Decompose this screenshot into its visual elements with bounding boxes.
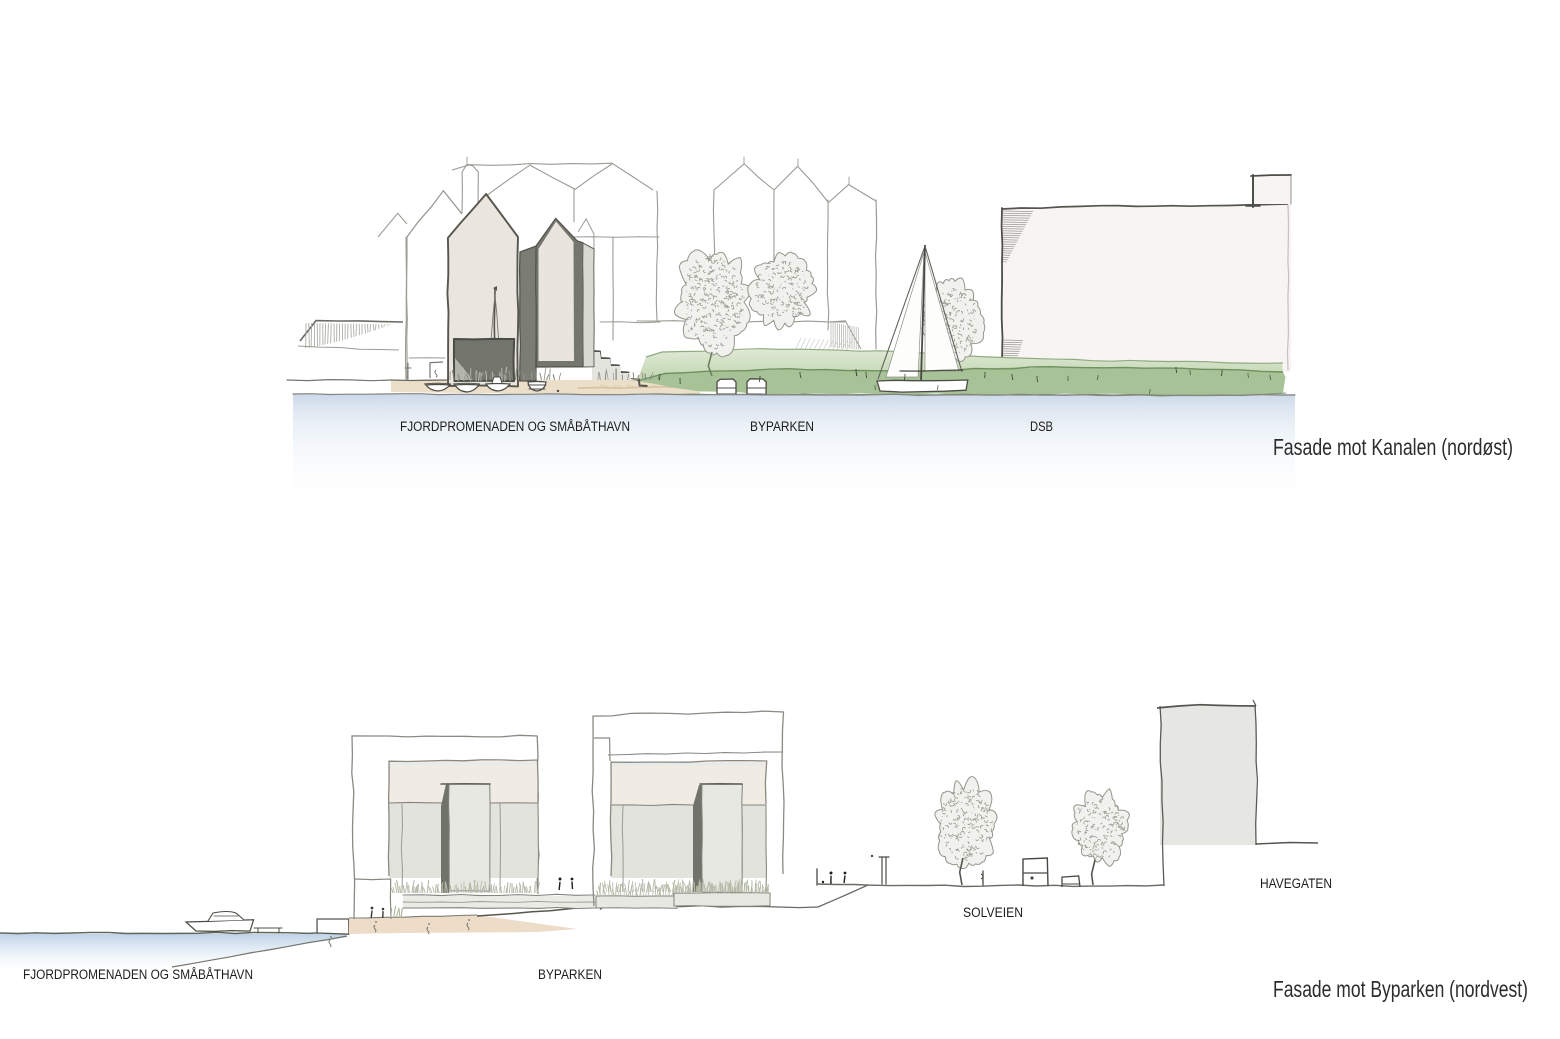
svg-text:SOLVEIEN: SOLVEIEN	[963, 905, 1023, 920]
svg-text:Fasade mot Byparken (nordvest): Fasade mot Byparken (nordvest)	[1273, 976, 1528, 1002]
svg-text:HAVEGATEN: HAVEGATEN	[1260, 876, 1332, 891]
svg-text:Fasade mot Kanalen (nordøst): Fasade mot Kanalen (nordøst)	[1273, 434, 1513, 460]
svg-text:BYPARKEN: BYPARKEN	[538, 967, 602, 982]
svg-text:BYPARKEN: BYPARKEN	[750, 419, 814, 434]
svg-text:DSB: DSB	[1030, 419, 1053, 434]
svg-text:FJORDPROMENADEN OG SMÅBÅTHAVN: FJORDPROMENADEN OG SMÅBÅTHAVN	[23, 967, 253, 982]
svg-text:FJORDPROMENADEN OG SMÅBÅTHAVN: FJORDPROMENADEN OG SMÅBÅTHAVN	[400, 419, 630, 434]
